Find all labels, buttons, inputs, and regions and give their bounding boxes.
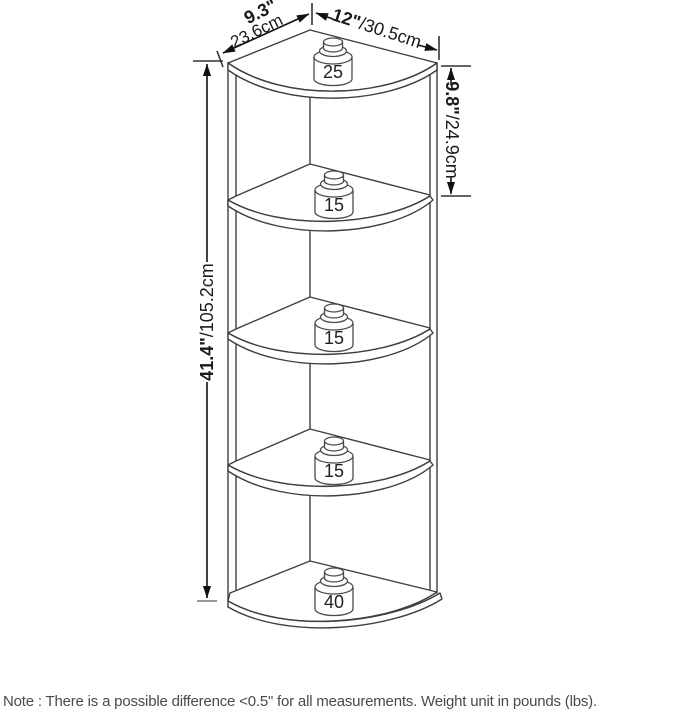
product-dimension-diagram: 25 15 15 15 (0, 0, 679, 718)
weight-capacity-label: 15 (324, 328, 344, 348)
measurement-note: Note : There is a possible difference <0… (3, 693, 597, 710)
dim-width-arrow-right (418, 45, 437, 50)
weight-capacity-label: 15 (324, 461, 344, 481)
dim-tier-height: 9.8"/24.9cm (441, 66, 471, 196)
dim-total-height: 41.4"/105.2cm (193, 61, 223, 601)
corner-shelf-diagram: 25 15 15 15 (0, 0, 679, 718)
dim-total-label: 41.4"/105.2cm (197, 263, 217, 381)
dim-tier-label: 9.8"/24.9cm (442, 81, 462, 179)
right-back-panel (430, 63, 437, 593)
weight-capacity-label: 40 (324, 592, 344, 612)
weight-capacity-label: 15 (324, 195, 344, 215)
weight-capacity-label: 25 (323, 62, 343, 82)
dim-width-arrow-left (316, 13, 333, 19)
dim-depth-tick-left (217, 51, 223, 67)
shelf-unit-drawing: 25 15 15 15 (228, 30, 442, 628)
